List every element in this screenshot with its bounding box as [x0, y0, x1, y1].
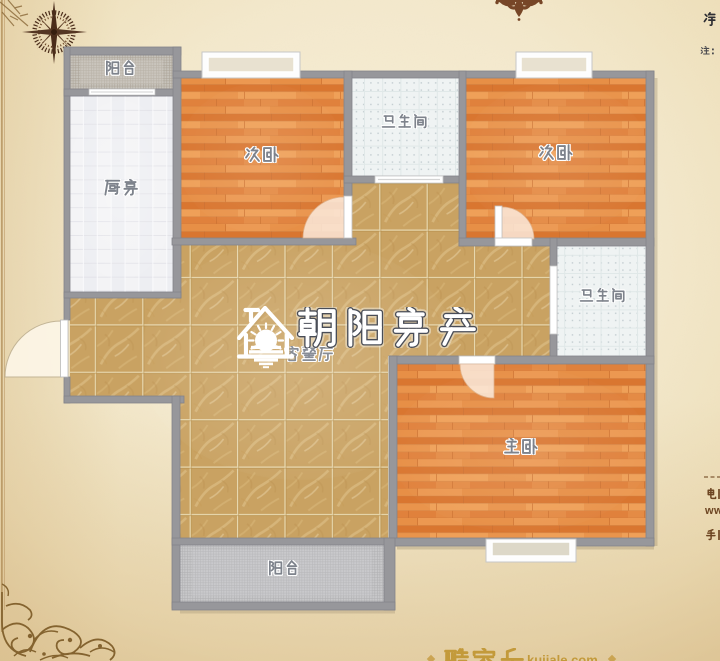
- svg-text:www: www: [704, 505, 720, 517]
- svg-text:kujiale.com: kujiale.com: [527, 653, 598, 661]
